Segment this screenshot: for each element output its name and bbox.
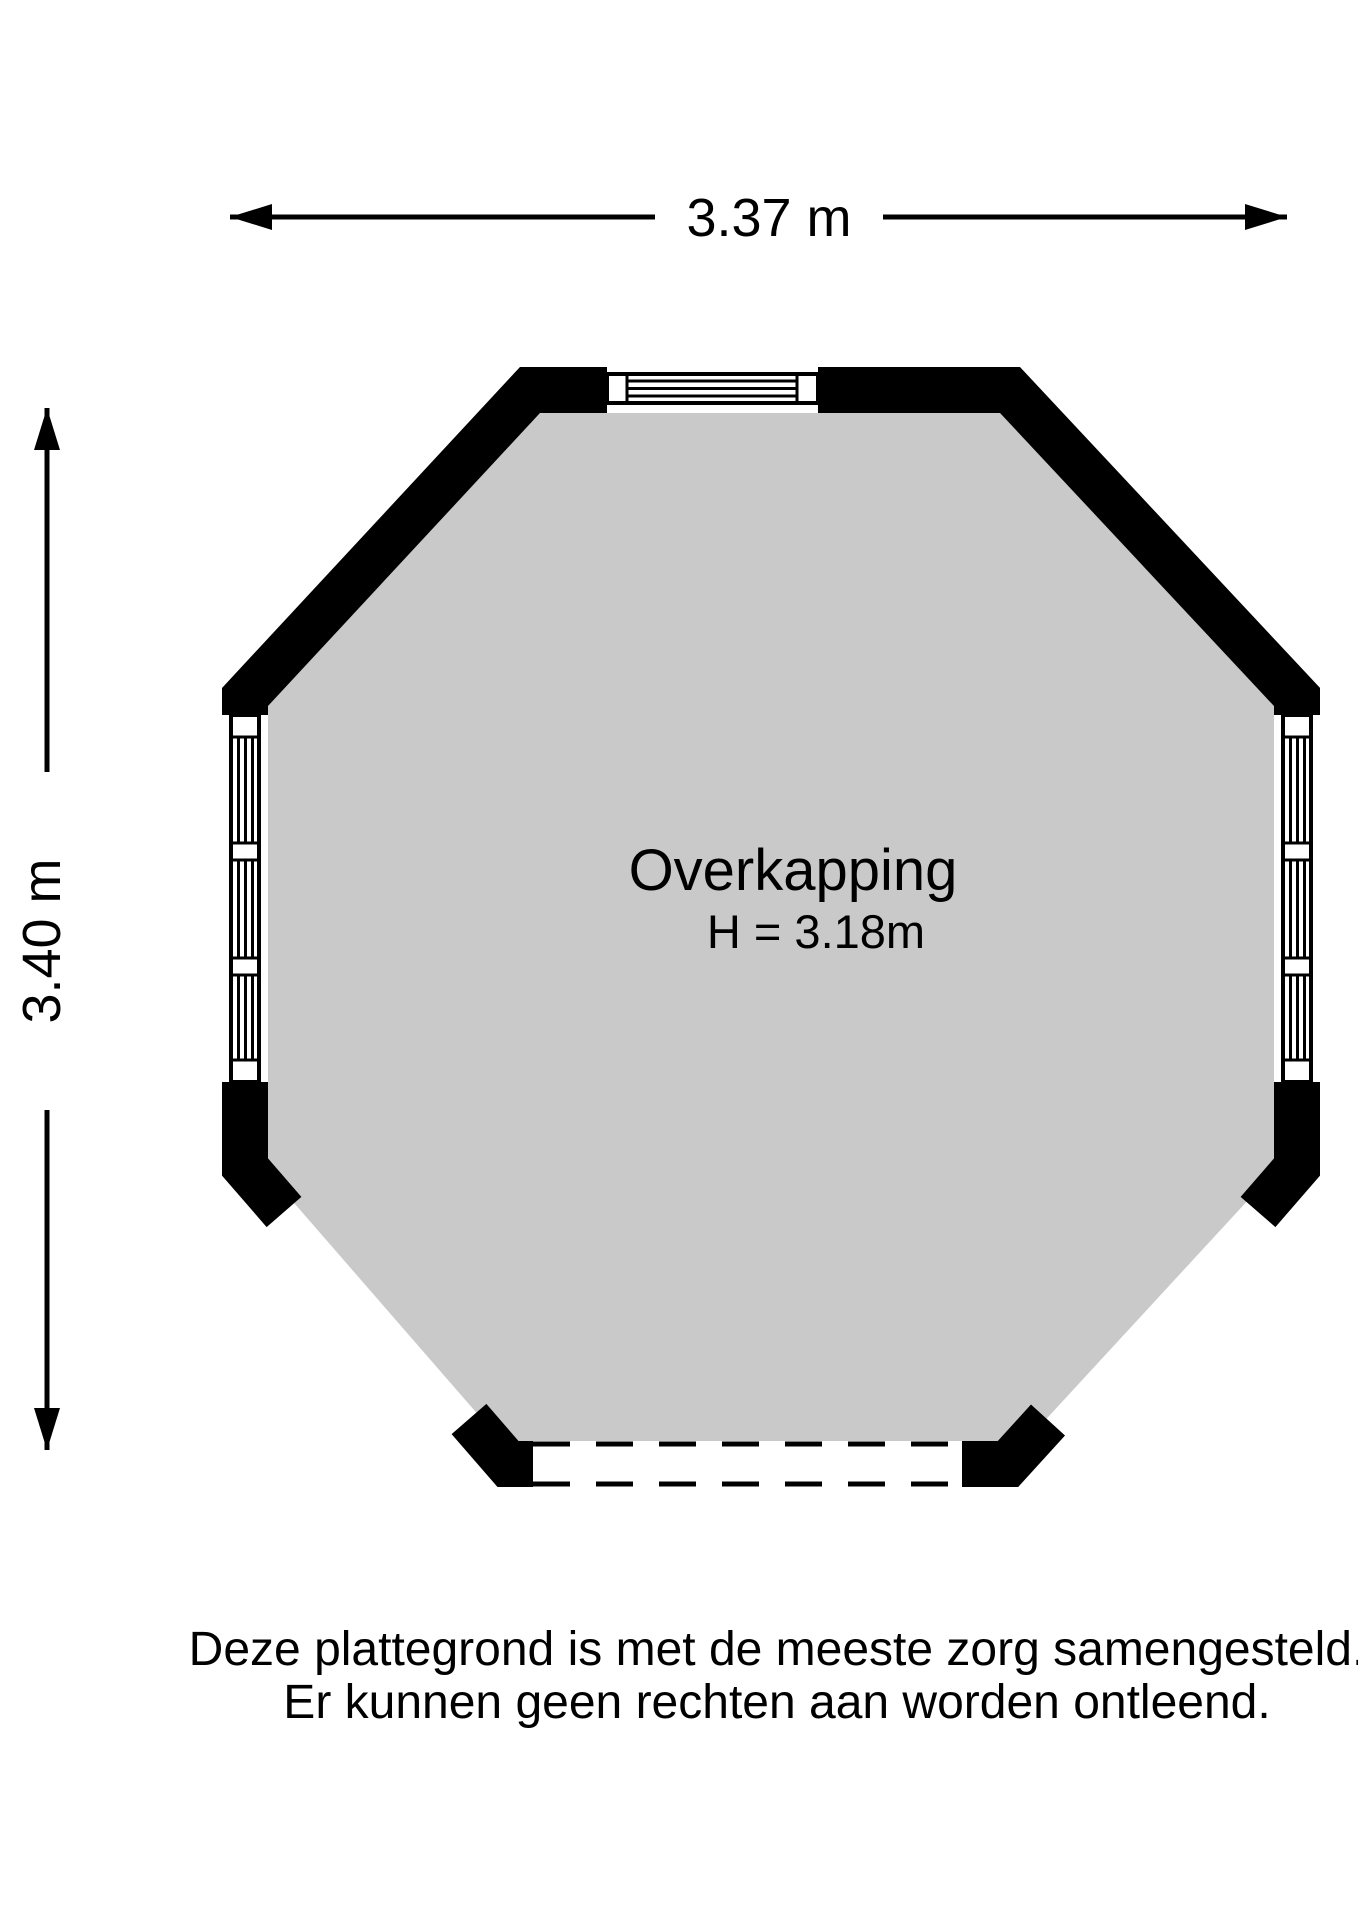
arrowhead-right-icon <box>1245 204 1287 230</box>
floorplan-page: 3.37 m 3.40 m Overkapping H = 3.18m Deze… <box>0 0 1358 1920</box>
arrowhead-up-icon <box>34 408 60 450</box>
window-left <box>231 715 259 1082</box>
dimension-label-height: 3.40 m <box>12 858 72 1023</box>
arrowhead-left-icon <box>230 204 272 230</box>
window-right <box>1283 715 1311 1082</box>
room-label: Overkapping <box>629 838 958 903</box>
open-side-bottom <box>533 1444 962 1484</box>
disclaimer-line-1: Deze plattegrond is met de meeste zorg s… <box>189 1623 1358 1676</box>
arrowhead-down-icon <box>34 1408 60 1450</box>
floorplan-canvas: 3.37 m 3.40 m Overkapping H = 3.18m Deze… <box>0 0 1358 1920</box>
dimension-label-width: 3.37 m <box>686 188 851 248</box>
disclaimer-line-2: Er kunnen geen rechten aan worden ontlee… <box>283 1676 1270 1729</box>
window-top <box>607 374 818 403</box>
room-height-label: H = 3.18m <box>707 905 925 958</box>
